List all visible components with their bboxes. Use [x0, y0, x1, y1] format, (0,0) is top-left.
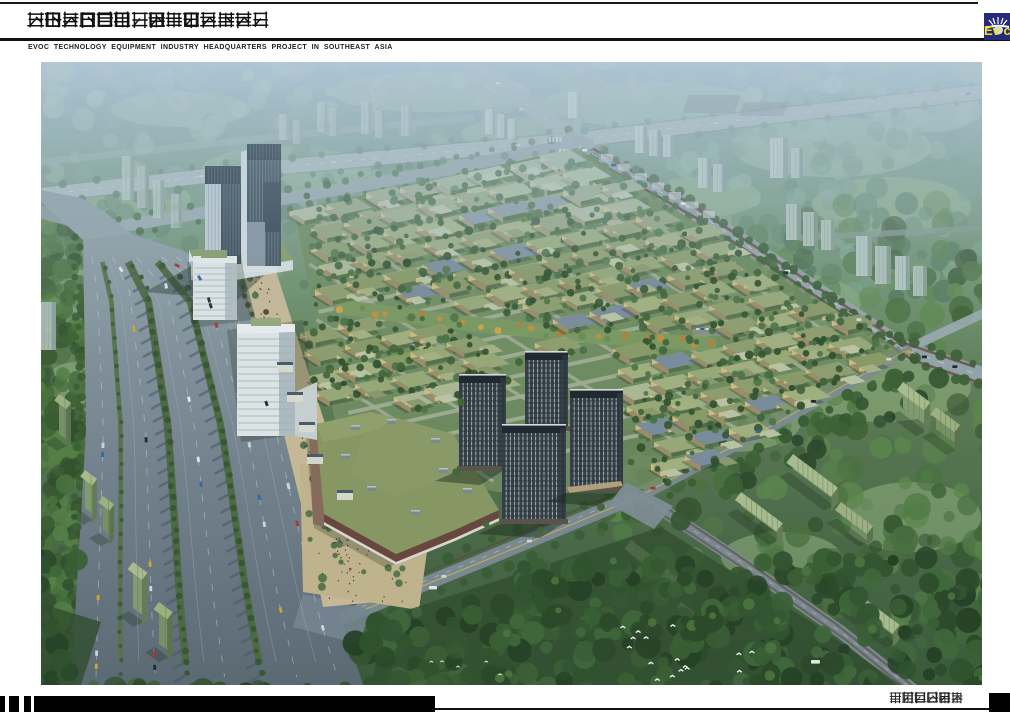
svg-text:Ev c: Ev c: [984, 23, 1010, 38]
